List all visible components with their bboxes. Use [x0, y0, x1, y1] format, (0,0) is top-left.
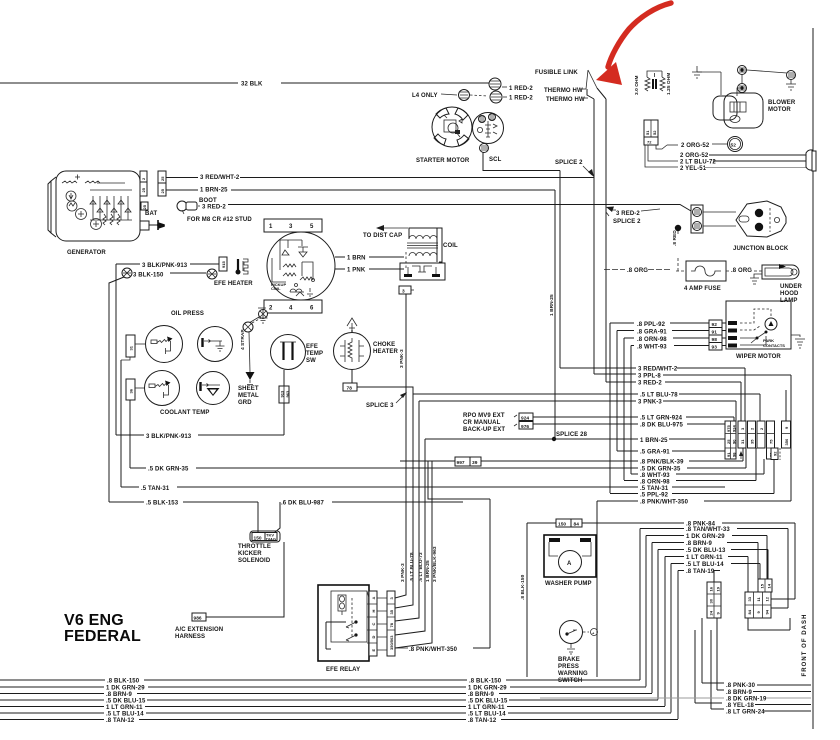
- svg-text:.8 BLK-150: .8 BLK-150: [520, 574, 526, 600]
- svg-text:913: 913: [280, 390, 285, 397]
- svg-text:SWITCH: SWITCH: [558, 678, 582, 684]
- svg-text:1: 1: [269, 224, 273, 230]
- svg-text:33: 33: [747, 596, 752, 601]
- svg-text:350: 350: [784, 438, 789, 445]
- svg-text:3 BLK-150: 3 BLK-150: [133, 273, 164, 279]
- svg-text:.5 LT BLU-14: .5 LT BLU-14: [686, 562, 724, 568]
- svg-text:PRESS: PRESS: [558, 664, 579, 670]
- svg-text:.8 GRA-91: .8 GRA-91: [637, 330, 667, 336]
- svg-text:HEATER: HEATER: [373, 349, 398, 355]
- svg-text:997: 997: [457, 460, 465, 466]
- svg-text:WARNING: WARNING: [558, 671, 588, 677]
- svg-text:.8 PNK/BLK-39: .8 PNK/BLK-39: [640, 460, 684, 466]
- svg-text:1 BRN-25: 1 BRN-25: [200, 188, 228, 194]
- svg-text:.8 ORG: .8 ORG: [731, 268, 752, 274]
- svg-text:1 DK GRN-29: 1 DK GRN-29: [686, 534, 725, 540]
- svg-text:51: 51: [645, 130, 650, 135]
- svg-text:.5 DK BLU-15: .5 DK BLU-15: [106, 699, 146, 705]
- svg-text:3 BLK/PNK-913: 3 BLK/PNK-913: [146, 434, 192, 440]
- svg-text:2 ORG-52: 2 ORG-52: [681, 143, 710, 149]
- svg-text:.8 DK GRN-19: .8 DK GRN-19: [726, 697, 767, 703]
- svg-text:FOR M8 CR #12 STUD: FOR M8 CR #12 STUD: [187, 217, 252, 223]
- svg-text:SPLICE 28: SPLICE 28: [556, 432, 588, 438]
- svg-text:MOTOR: MOTOR: [768, 107, 791, 113]
- svg-text:78: 78: [389, 622, 394, 627]
- svg-text:.5 DK BLU-15: .5 DK BLU-15: [468, 699, 508, 705]
- svg-text:986: 986: [194, 616, 202, 622]
- svg-text:UNDER: UNDER: [780, 284, 802, 290]
- svg-text:.8 ORG: .8 ORG: [627, 268, 648, 274]
- svg-text:6: 6: [310, 306, 314, 312]
- svg-text:FUSIBLE LINK: FUSIBLE LINK: [535, 70, 578, 76]
- svg-text:SCL: SCL: [489, 157, 502, 163]
- svg-text:.8 BRN-9: .8 BRN-9: [686, 541, 713, 547]
- svg-text:3 PNK-3: 3 PNK-3: [400, 563, 406, 582]
- svg-text:.5 DK GRN-35: .5 DK GRN-35: [148, 467, 189, 473]
- svg-text:5: 5: [310, 224, 314, 230]
- svg-text:3 RED-2: 3 RED-2: [616, 211, 640, 217]
- svg-text:SOLENOID: SOLENOID: [238, 558, 271, 564]
- svg-text:CONTACTS: CONTACTS: [763, 343, 785, 348]
- svg-text:THROTTLE: THROTTLE: [238, 544, 271, 550]
- svg-text:THERMO HW: THERMO HW: [546, 97, 585, 103]
- svg-text:39: 39: [472, 460, 478, 466]
- svg-text:3 PNK-3: 3 PNK-3: [399, 349, 405, 368]
- svg-text:3 BLK/PNK-913: 3 BLK/PNK-913: [142, 263, 188, 269]
- svg-text:.8 ORN-98: .8 ORN-98: [640, 480, 670, 486]
- svg-text:.8 BLK-150: .8 BLK-150: [107, 679, 140, 685]
- svg-text:DIAG: DIAG: [266, 537, 276, 542]
- svg-text:1 BRN: 1 BRN: [347, 256, 366, 262]
- svg-text:SPLICE 2: SPLICE 2: [555, 160, 583, 166]
- svg-text:THERMO HW: THERMO HW: [544, 88, 583, 94]
- svg-text:EFE HEATER: EFE HEATER: [214, 281, 253, 287]
- svg-text:FEDERAL: FEDERAL: [64, 628, 141, 645]
- svg-text:915: 915: [221, 261, 226, 268]
- svg-text:19: 19: [716, 586, 721, 591]
- svg-text:.8 LT GRN-24: .8 LT GRN-24: [726, 710, 765, 716]
- svg-text:WIPER MOTOR: WIPER MOTOR: [736, 354, 781, 360]
- svg-text:976: 976: [521, 424, 529, 430]
- svg-text:2 LT BLU-72: 2 LT BLU-72: [680, 160, 716, 166]
- svg-text:25: 25: [141, 187, 146, 192]
- svg-text:16: 16: [709, 586, 714, 591]
- svg-text:OIL PRESS: OIL PRESS: [171, 311, 204, 317]
- svg-text:3 RED/WHT-2: 3 RED/WHT-2: [200, 175, 240, 181]
- svg-text:1 LT GRN-11: 1 LT GRN-11: [106, 705, 143, 711]
- svg-text:A/C EXTENSION: A/C EXTENSION: [175, 627, 223, 633]
- svg-text:52: 52: [652, 130, 657, 135]
- svg-text:350/503: 350/503: [389, 635, 394, 650]
- svg-text:3 PPL-8: 3 PPL-8: [638, 374, 661, 380]
- svg-text:3 RED/WHT-2: 3 RED/WHT-2: [638, 367, 678, 373]
- svg-text:150: 150: [254, 536, 262, 542]
- svg-text:BACK-UP EXT: BACK-UP EXT: [463, 427, 505, 433]
- svg-text:15: 15: [760, 583, 765, 588]
- svg-text:25: 25: [160, 188, 165, 193]
- svg-text:1 LT GRN-11: 1 LT GRN-11: [686, 555, 723, 561]
- svg-text:.5 LT BLU-78: .5 LT BLU-78: [409, 552, 415, 582]
- svg-text:31: 31: [129, 345, 134, 350]
- svg-text:3 RED-2: 3 RED-2: [638, 381, 662, 387]
- svg-text:.8 BRN-9: .8 BRN-9: [726, 690, 753, 696]
- svg-text:.5 DK BLU-13: .5 DK BLU-13: [686, 548, 726, 554]
- svg-text:3: 3: [402, 289, 405, 295]
- svg-text:BRAKE: BRAKE: [558, 657, 580, 663]
- svg-text:.8 WHT-93: .8 WHT-93: [640, 473, 670, 479]
- svg-text:.5 LT BLU-14: .5 LT BLU-14: [468, 712, 506, 718]
- svg-text:HOOD: HOOD: [780, 291, 799, 297]
- svg-text:91: 91: [726, 452, 731, 457]
- svg-text:.8 RED: .8 RED: [672, 230, 678, 246]
- svg-text:4: 4: [289, 306, 293, 312]
- svg-text:2: 2: [269, 306, 273, 312]
- svg-text:.5 LT BLU-78: .5 LT BLU-78: [640, 393, 678, 399]
- svg-text:H: H: [371, 610, 376, 613]
- svg-text:975: 975: [726, 425, 731, 432]
- svg-text:1 BRN-25: 1 BRN-25: [549, 294, 555, 316]
- svg-text:.8 TAN-12: .8 TAN-12: [468, 718, 497, 724]
- svg-text:32 BLK: 32 BLK: [241, 82, 263, 88]
- svg-text:963: 963: [285, 390, 290, 397]
- svg-text:BLOWER: BLOWER: [768, 100, 796, 106]
- svg-text:24: 24: [709, 610, 714, 615]
- svg-text:SHEET: SHEET: [238, 386, 259, 392]
- svg-text:TO DIST CAP: TO DIST CAP: [363, 233, 402, 239]
- svg-text:3 PNK-3: 3 PNK-3: [638, 400, 662, 406]
- svg-text:HARNESS: HARNESS: [175, 634, 205, 640]
- svg-text:1 DK GRN-29: 1 DK GRN-29: [106, 686, 145, 692]
- svg-text:.8 BRN-9: .8 BRN-9: [106, 692, 133, 698]
- svg-text:SW: SW: [306, 358, 316, 364]
- svg-text:12: 12: [765, 596, 770, 601]
- svg-text:.8 PNK/WHT-350: .8 PNK/WHT-350: [409, 647, 458, 653]
- svg-text:V6 ENG: V6 ENG: [64, 612, 124, 629]
- svg-text:A: A: [371, 597, 376, 600]
- svg-text:D: D: [371, 636, 376, 639]
- svg-text:30: 30: [709, 598, 714, 603]
- svg-text:92: 92: [773, 451, 778, 456]
- svg-text:.5 LT GRN-924: .5 LT GRN-924: [640, 416, 683, 422]
- svg-text:COOLANT TEMP: COOLANT TEMP: [160, 410, 209, 416]
- svg-text:EFE: EFE: [306, 344, 318, 350]
- svg-text:93: 93: [712, 345, 718, 351]
- svg-text:.8 YEL-18: .8 YEL-18: [726, 703, 755, 709]
- svg-text:.5 TAN-31: .5 TAN-31: [141, 486, 170, 492]
- svg-text:924: 924: [732, 425, 737, 432]
- svg-text:.5 PPL-92: .5 PPL-92: [640, 493, 669, 499]
- svg-text:JUNCTION BLOCK: JUNCTION BLOCK: [733, 246, 789, 252]
- svg-text:C: C: [371, 623, 376, 626]
- svg-text:52: 52: [731, 143, 737, 149]
- svg-text:84: 84: [747, 609, 752, 614]
- svg-text:31: 31: [740, 439, 745, 444]
- svg-text:924: 924: [521, 416, 529, 422]
- svg-text:.8 TAN-12: .8 TAN-12: [106, 718, 135, 724]
- svg-text:94: 94: [765, 609, 770, 614]
- svg-text:1 LT GRN-11: 1 LT GRN-11: [468, 705, 505, 711]
- svg-text:BAT: BAT: [145, 211, 157, 217]
- svg-text:.5 DK GRN-35: .5 DK GRN-35: [640, 467, 681, 473]
- svg-text:COIL: COIL: [271, 286, 281, 291]
- svg-text:SPLICE 3: SPLICE 3: [366, 403, 394, 409]
- svg-text:.5 TAN-31: .5 TAN-31: [640, 486, 669, 492]
- svg-text:3.0 OHM: 3.0 OHM: [634, 75, 640, 95]
- svg-text:3: 3: [289, 224, 293, 230]
- svg-text:25: 25: [142, 204, 147, 209]
- svg-text:75: 75: [769, 439, 774, 444]
- svg-text:CHOKE: CHOKE: [373, 342, 395, 348]
- svg-text:.8 PNK-30: .8 PNK-30: [726, 683, 756, 689]
- svg-text:1 BRN-25: 1 BRN-25: [640, 438, 668, 444]
- svg-text:36: 36: [129, 388, 134, 393]
- svg-text:.8 PPL-92: .8 PPL-92: [637, 322, 666, 328]
- svg-text:72: 72: [647, 140, 652, 145]
- svg-text:3 PNK/BLK-963: 3 PNK/BLK-963: [432, 546, 438, 582]
- svg-text:.8 BLK-150: .8 BLK-150: [469, 679, 502, 685]
- svg-text:CR MANUAL: CR MANUAL: [463, 420, 501, 426]
- svg-text:.5 BLK-153: .5 BLK-153: [146, 501, 179, 507]
- svg-text:2 ORG-52: 2 ORG-52: [680, 153, 709, 159]
- svg-text:25: 25: [726, 439, 731, 444]
- svg-text:1 DK GRN-29: 1 DK GRN-29: [468, 686, 507, 692]
- svg-text:14: 14: [767, 583, 772, 588]
- svg-text:84: 84: [574, 522, 580, 528]
- svg-text:EFE RELAY: EFE RELAY: [326, 667, 360, 673]
- svg-text:GENERATOR: GENERATOR: [67, 250, 106, 256]
- svg-text:98: 98: [732, 452, 737, 457]
- svg-text:.6 DK BLU-987: .6 DK BLU-987: [281, 501, 324, 507]
- svg-text:.8 PNK/WHT-350: .8 PNK/WHT-350: [640, 500, 689, 506]
- svg-text:.8 TAN/WHT-33: .8 TAN/WHT-33: [686, 527, 730, 533]
- svg-text:KICKER: KICKER: [238, 551, 262, 557]
- svg-text:A: A: [567, 561, 572, 567]
- svg-text:150: 150: [558, 522, 566, 528]
- svg-text:.8 TAN-19: .8 TAN-19: [686, 569, 715, 575]
- svg-text:SPLICE 2: SPLICE 2: [613, 219, 641, 225]
- svg-text:1 RED-2: 1 RED-2: [509, 86, 533, 92]
- svg-text:25: 25: [160, 176, 165, 181]
- svg-text:COIL: COIL: [443, 243, 458, 249]
- svg-text:GRD: GRD: [238, 400, 252, 406]
- svg-text:.8 WHT-93: .8 WHT-93: [637, 345, 667, 351]
- svg-text:STARTER MOTOR: STARTER MOTOR: [416, 158, 470, 164]
- svg-text:4 STRAP: 4 STRAP: [240, 329, 246, 350]
- svg-text:.8 DK BLU-975: .8 DK BLU-975: [640, 423, 683, 429]
- svg-text:1 BRN-25: 1 BRN-25: [425, 560, 431, 582]
- svg-text:90: 90: [732, 439, 737, 444]
- svg-text:METAL: METAL: [238, 393, 259, 399]
- svg-text:1 RED-2: 1 RED-2: [509, 96, 533, 102]
- svg-text:.5 GRA-91: .5 GRA-91: [640, 450, 670, 456]
- svg-text:.5 LT BLU-73: .5 LT BLU-73: [418, 552, 424, 582]
- svg-text:78: 78: [347, 386, 353, 392]
- svg-text:2 YEL-51: 2 YEL-51: [680, 166, 707, 172]
- svg-text:1 PNK: 1 PNK: [347, 268, 366, 274]
- svg-text:.5 LT BLU-14: .5 LT BLU-14: [106, 712, 144, 718]
- svg-text:RPO MV9 EXT: RPO MV9 EXT: [463, 413, 505, 419]
- svg-text:3 RED-2: 3 RED-2: [202, 205, 226, 211]
- svg-text:FRONT OF DASH: FRONT OF DASH: [802, 614, 808, 677]
- svg-text:L4 ONLY: L4 ONLY: [412, 93, 438, 99]
- svg-text:1.25 OHM: 1.25 OHM: [666, 73, 672, 95]
- svg-text:TEMP: TEMP: [306, 351, 323, 357]
- svg-text:.8 ORN-98: .8 ORN-98: [637, 337, 667, 343]
- svg-text:BOOT: BOOT: [199, 198, 217, 204]
- svg-text:4 AMP FUSE: 4 AMP FUSE: [684, 286, 721, 292]
- svg-text:35: 35: [750, 439, 755, 444]
- svg-text:35: 35: [389, 609, 394, 614]
- svg-text:.8 BRN-9: .8 BRN-9: [468, 692, 495, 698]
- svg-text:E: E: [371, 649, 376, 652]
- svg-text:WASHER PUMP: WASHER PUMP: [545, 581, 592, 587]
